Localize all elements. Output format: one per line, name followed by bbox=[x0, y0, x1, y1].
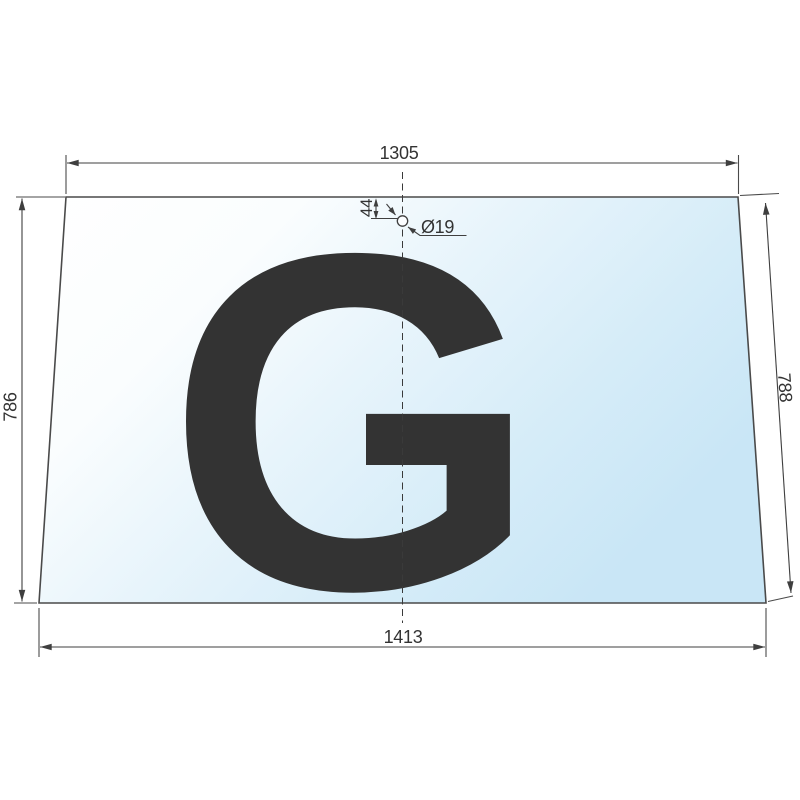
dimension-label-top-width: 1305 bbox=[380, 143, 419, 163]
drawing-page: G 1305 1413 786 788 44 Ø19 bbox=[0, 0, 800, 800]
hole-circle bbox=[397, 216, 407, 226]
extension-line-right-top bbox=[740, 194, 779, 196]
watermark-letter: G bbox=[166, 153, 539, 690]
dimension-label-right-height: 788 bbox=[774, 372, 796, 403]
extension-line-right-bottom bbox=[768, 596, 793, 602]
dimension-label-left-height: 786 bbox=[1, 392, 21, 421]
technical-drawing-canvas: G 1305 1413 786 788 44 Ø19 bbox=[0, 0, 800, 800]
dimension-label-hole-diameter: Ø19 bbox=[421, 217, 454, 237]
dimension-label-bottom-width: 1413 bbox=[384, 627, 423, 647]
dimension-label-hole-offset: 44 bbox=[357, 199, 376, 217]
